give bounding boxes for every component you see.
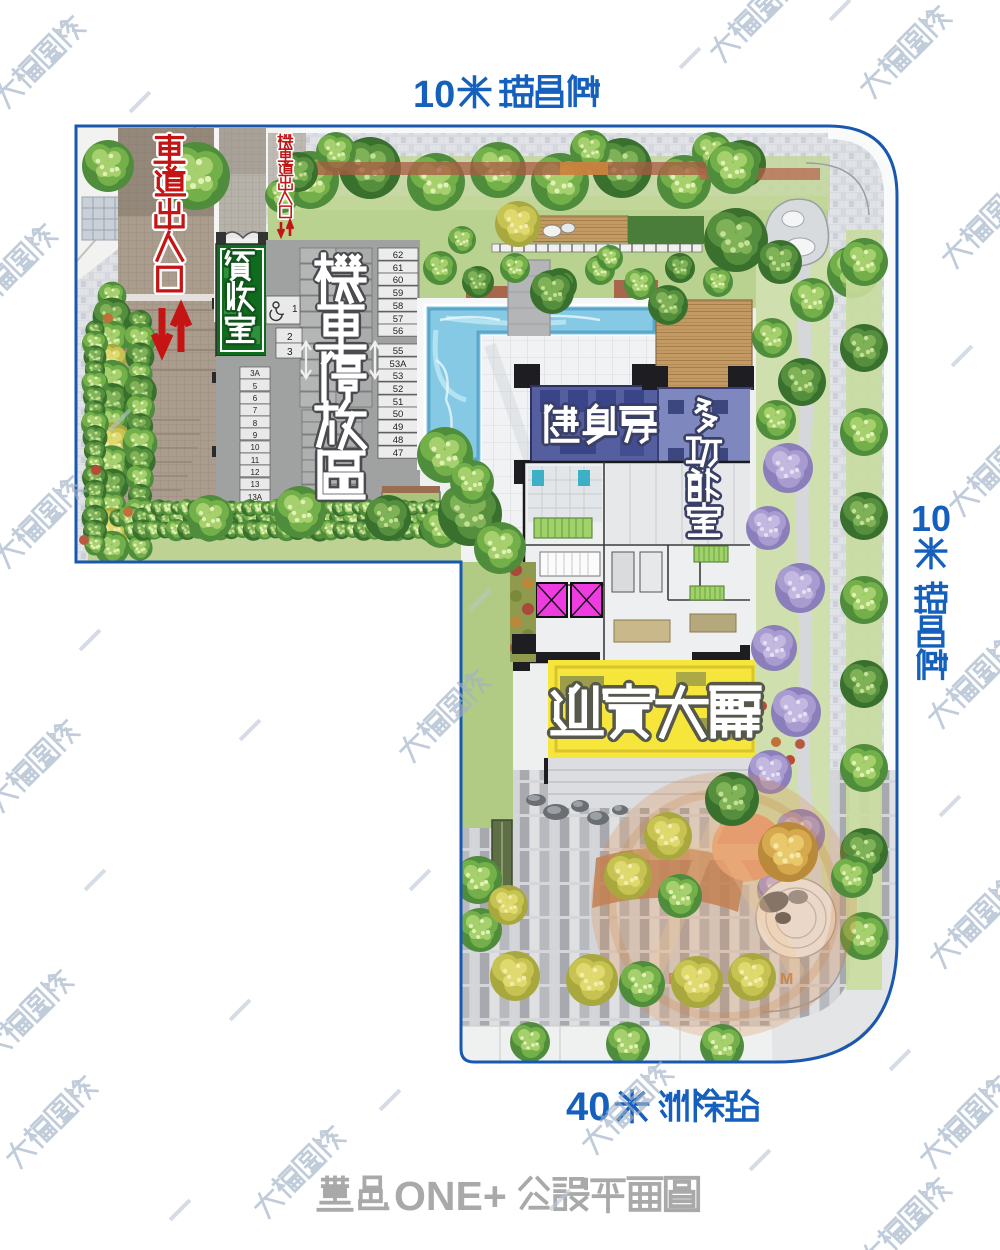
svg-text:58: 58: [393, 301, 404, 312]
svg-text:11: 11: [251, 456, 260, 465]
svg-text:3A: 3A: [250, 369, 260, 378]
svg-text:52: 52: [393, 384, 404, 395]
svg-text:53: 53: [393, 371, 404, 382]
svg-text:8: 8: [253, 419, 258, 428]
svg-text:53A: 53A: [390, 359, 408, 370]
svg-text:49: 49: [393, 422, 404, 433]
svg-text:13: 13: [251, 480, 260, 489]
svg-text:ONE+: ONE+: [394, 1173, 507, 1219]
svg-text:3: 3: [287, 347, 293, 358]
svg-text:61: 61: [393, 263, 404, 274]
svg-text:9: 9: [253, 431, 258, 440]
svg-text:50: 50: [393, 409, 404, 420]
svg-text:56: 56: [393, 326, 404, 337]
svg-text:47: 47: [393, 448, 404, 459]
svg-text:7: 7: [253, 406, 258, 415]
svg-text:60: 60: [393, 275, 404, 286]
svg-text:10: 10: [911, 498, 951, 539]
svg-text:10: 10: [251, 443, 260, 452]
svg-text:59: 59: [393, 288, 404, 299]
svg-text:57: 57: [393, 314, 404, 325]
svg-text:12: 12: [251, 468, 260, 477]
svg-text:6: 6: [253, 394, 258, 403]
svg-text:1: 1: [292, 304, 298, 315]
svg-text:51: 51: [393, 397, 404, 408]
svg-text:2: 2: [287, 332, 293, 343]
svg-text:48: 48: [393, 435, 404, 446]
svg-text:40: 40: [566, 1085, 611, 1129]
svg-text:10: 10: [413, 74, 455, 116]
svg-text:55: 55: [393, 346, 404, 357]
svg-text:5: 5: [253, 382, 258, 391]
svg-text:62: 62: [393, 250, 404, 261]
